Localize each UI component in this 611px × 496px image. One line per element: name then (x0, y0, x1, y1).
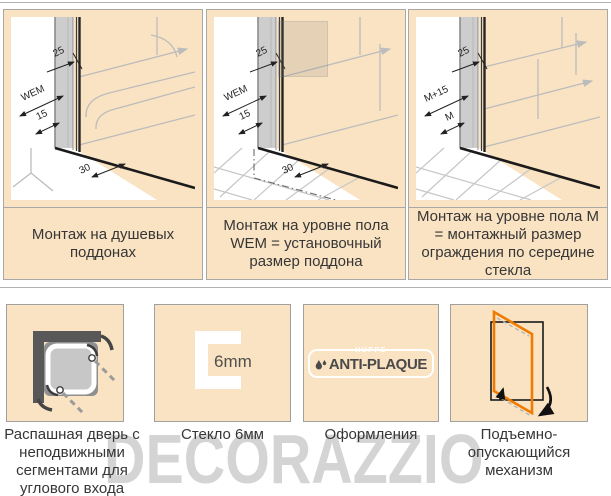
feature-tile-corner-entry (6, 304, 124, 422)
feature-tile-glass: 6mm (154, 304, 291, 422)
water-drop-icon (315, 356, 327, 373)
floor-wem-install-drawing-icon: 25 WEM 15 30 (214, 17, 398, 200)
install-caption-tray: Монтаж на душевых поддонах (4, 207, 202, 279)
install-diagram-tray: 25 WEM 15 30 (11, 17, 195, 200)
tray-install-drawing-icon: 25 WEM 15 30 (11, 17, 195, 200)
install-panel-floor-m: 25 M+15 M Монтаж на уровне пола М = монт… (408, 9, 608, 280)
huppe-brand-label: HUPPE (310, 346, 432, 355)
corner-entry-plan-icon (7, 305, 123, 421)
product-spec-sheet: 25 WEM 15 30 Монтаж на душевых поддонах (0, 0, 611, 496)
install-caption-floor-wem: Монтаж на уровне пола WEM = установочный… (207, 207, 405, 279)
anti-plaque-label: ANTI-PLAQUE (329, 356, 427, 373)
feature-caption-glass: Стекло 6мм (154, 426, 291, 444)
feature-caption-corner-entry: Распашная дверь с неподвижными сегментам… (2, 426, 142, 496)
install-panel-floor-wem: 25 WEM 15 30 Монтаж на уровне пола WEM =… (206, 9, 406, 280)
lift-lower-door-icon (451, 305, 587, 421)
top-divider-line (0, 2, 611, 3)
feature-tile-antiplaque: HUPPE ANTI-PLAQUE (303, 304, 439, 422)
glass-thickness-icon: 6mm (155, 305, 290, 421)
install-panel-tray: 25 WEM 15 30 Монтаж на душевых поддонах (3, 9, 203, 280)
anti-plaque-logo: HUPPE ANTI-PLAQUE (308, 349, 434, 378)
install-diagram-floor-m: 25 M+15 M (416, 17, 600, 200)
install-caption-floor-m: Монтаж на уровне пола М = монтажный разм… (409, 207, 607, 279)
section-divider-line (0, 287, 611, 288)
feature-caption-lift-mechanism: Подъемно-опускающийся механизм (444, 426, 594, 480)
install-diagram-floor-wem: 25 WEM 15 30 (214, 17, 398, 200)
floor-m-install-drawing-icon: 25 M+15 M (416, 17, 600, 200)
feature-tile-lift-mechanism (450, 304, 588, 422)
glass-thickness-label: 6mm (214, 352, 252, 371)
feature-caption-antiplaque: Оформления (303, 426, 439, 444)
